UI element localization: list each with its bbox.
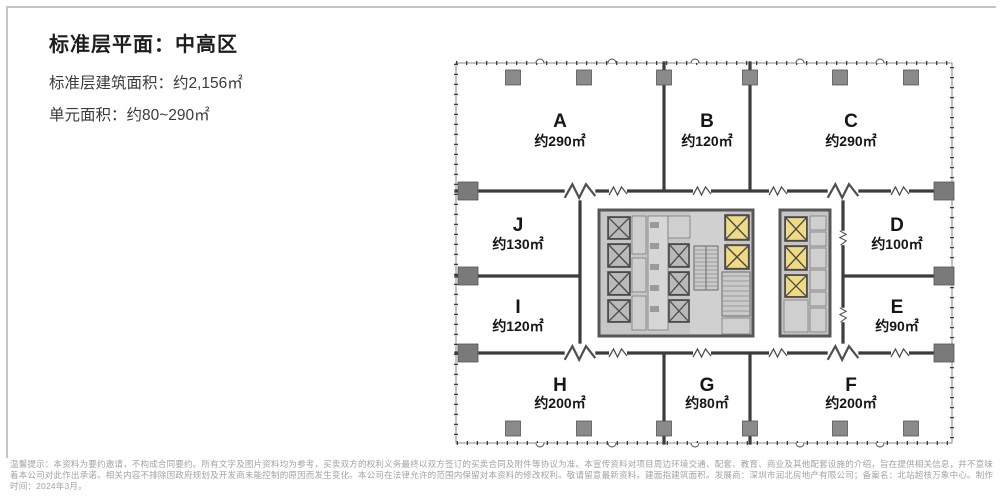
disclaimer-line-2: 着本公司对此作出承诺。相关内容不排除因政府规划及开发商未能控制的原因而发生变化。… xyxy=(10,470,994,481)
disclaimer-line-3: 时间：2024年3月。 xyxy=(10,481,994,492)
highlighted-elevators-right xyxy=(785,217,807,297)
svg-text:约290㎡: 约290㎡ xyxy=(534,133,585,149)
svg-text:A: A xyxy=(553,111,567,132)
svg-text:C: C xyxy=(844,111,858,132)
svg-text:I: I xyxy=(515,297,520,318)
disclaimer-line-1: 温馨提示：本资料为要约邀请，不构成合同要约。所有文字及图片资料均为参考，买卖双方… xyxy=(10,459,994,470)
gross-area-line: 标准层建筑面积：约2,156㎡ xyxy=(49,71,449,93)
svg-text:J: J xyxy=(513,215,524,236)
header: 标准层平面：中高区 标准层建筑面积：约2,156㎡ 单元面积：约80~290㎡ xyxy=(49,28,238,57)
unit-area-line: 单元面积：约80~290㎡ xyxy=(49,103,449,125)
svg-text:H: H xyxy=(553,375,567,396)
svg-text:约290㎡: 约290㎡ xyxy=(825,133,876,149)
svg-text:约90㎡: 约90㎡ xyxy=(875,318,919,334)
svg-text:约130㎡: 约130㎡ xyxy=(492,236,543,252)
slide-frame-left-line xyxy=(6,6,8,458)
disclaimer: 温馨提示：本资料为要约邀请，不构成合同要约。所有文字及图片资料均为参考，买卖双方… xyxy=(10,459,994,491)
svg-text:G: G xyxy=(700,375,715,396)
svg-text:约200㎡: 约200㎡ xyxy=(534,395,585,411)
page-title: 标准层平面：中高区 xyxy=(49,28,238,57)
restrooms xyxy=(648,216,668,330)
svg-text:约120㎡: 约120㎡ xyxy=(681,133,732,149)
svg-text:E: E xyxy=(891,297,904,318)
core-right xyxy=(780,210,830,336)
core-left xyxy=(599,210,753,336)
svg-text:F: F xyxy=(845,375,857,396)
svg-text:B: B xyxy=(700,111,714,132)
svg-text:约120㎡: 约120㎡ xyxy=(492,318,543,334)
svg-text:D: D xyxy=(890,215,904,236)
page: { "header": { "title": "标准层平面：中高区", "gro… xyxy=(0,0,1000,501)
floor-plan: A 约290㎡ B 约120㎡ C 约290㎡ D 约100㎡ E 约90㎡ F… xyxy=(440,14,996,458)
slide-frame-top-line xyxy=(6,6,996,8)
svg-text:约200㎡: 约200㎡ xyxy=(825,395,876,411)
svg-text:约80㎡: 约80㎡ xyxy=(685,395,729,411)
svg-text:约100㎡: 约100㎡ xyxy=(871,236,922,252)
